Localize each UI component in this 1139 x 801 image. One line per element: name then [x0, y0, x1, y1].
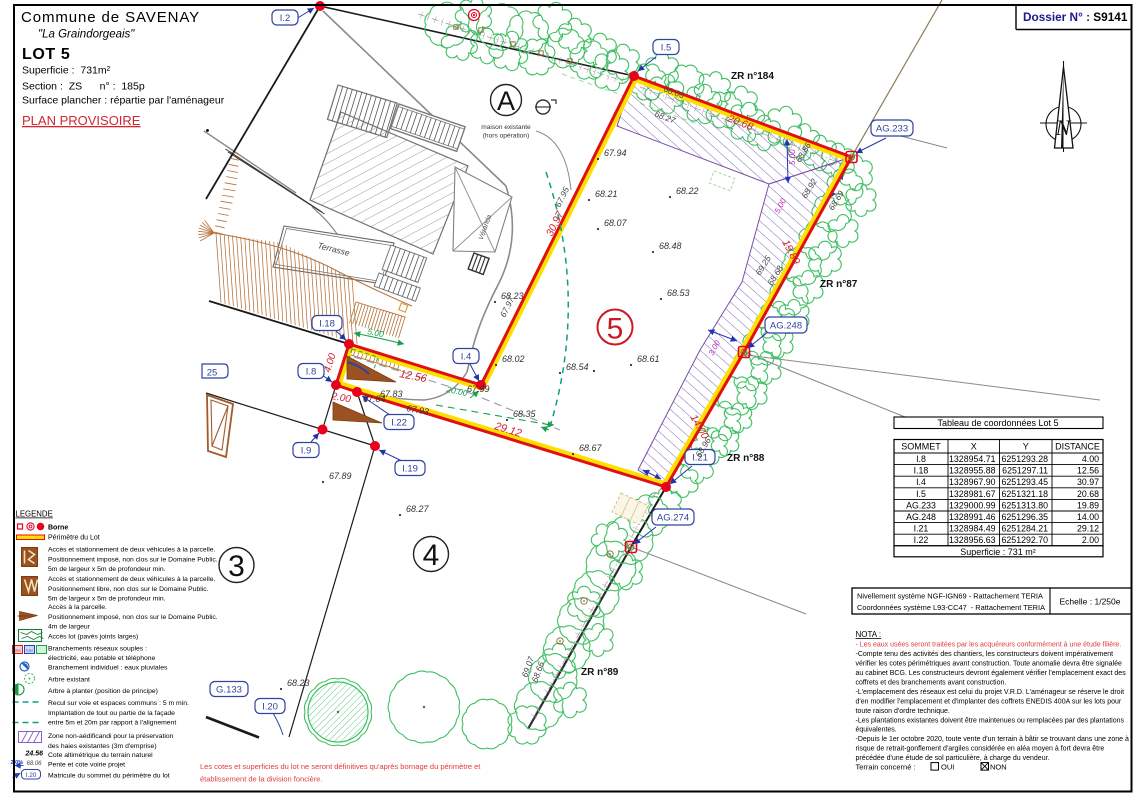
svg-text:toute raison d'ordre technique: toute raison d'ordre technique.	[856, 708, 950, 715]
svg-text:Coordonnées système L93-CC47: Coordonnées système L93-CC47 - Rattachem…	[857, 603, 1045, 612]
svg-text:ZR n°88: ZR n°88	[727, 453, 765, 464]
svg-text:Périmètre du Lot: Périmètre du Lot	[48, 535, 100, 542]
svg-text:1328954.71: 1328954.71	[949, 454, 996, 464]
svg-text:AG.248: AG.248	[770, 320, 802, 331]
svg-text:14.00: 14.00	[1077, 512, 1099, 522]
svg-text:NON: NON	[990, 763, 1007, 772]
svg-text:Commune de SAVENAY: Commune de SAVENAY	[21, 9, 200, 26]
svg-text:6251284.21: 6251284.21	[1002, 524, 1049, 534]
svg-text:PLAN PROVISOIRE: PLAN PROVISOIRE	[22, 113, 141, 128]
svg-text:68.61: 68.61	[637, 354, 660, 364]
svg-text:Elec: Elec	[14, 649, 21, 653]
svg-text:I.21: I.21	[914, 524, 929, 534]
svg-text:67.94: 67.94	[604, 148, 627, 158]
svg-text:68.21: 68.21	[595, 189, 618, 199]
svg-text:1328956.63: 1328956.63	[949, 535, 996, 545]
svg-text:Positionnement libre, non clos: Positionnement libre, non clos sur le Do…	[48, 586, 209, 593]
svg-text:AG.233: AG.233	[876, 123, 908, 134]
svg-text:68.22: 68.22	[676, 186, 699, 196]
svg-text:Matricule du sommet du périmèt: Matricule du sommet du périmètre du lot	[48, 773, 170, 780]
svg-text:NOTA :: NOTA :	[856, 630, 882, 639]
svg-text:I.2: I.2	[280, 13, 291, 24]
svg-text:Accès à la parcelle.: Accès à la parcelle.	[48, 604, 107, 611]
svg-text:I.20: I.20	[262, 701, 278, 712]
svg-text:AG.274: AG.274	[657, 512, 689, 523]
svg-text:24.56: 24.56	[25, 751, 44, 758]
svg-text:risque de retrait-gonflement d: risque de retrait-gonflement d'argiles c…	[856, 746, 1105, 753]
svg-text:OUI: OUI	[941, 763, 954, 772]
svg-text:Accès et stationnement de deux: Accès et stationnement de deux véhicules…	[48, 547, 215, 554]
svg-text:(hors opération): (hors opération)	[483, 133, 530, 140]
svg-text:Positionnement imposé, non clo: Positionnement imposé, non clos sur le D…	[48, 614, 218, 621]
svg-text:2.00: 2.00	[1082, 535, 1099, 545]
svg-text:6251292.70: 6251292.70	[1002, 535, 1049, 545]
svg-text:68.27: 68.27	[406, 504, 430, 514]
svg-text:établissement de la division f: établissement de la division foncière.	[200, 775, 323, 784]
svg-text:Superficie : 731 m²: Superficie : 731 m²	[960, 547, 1036, 557]
svg-text:Cote altimétrique du terrain n: Cote altimétrique du terrain naturel	[48, 752, 153, 759]
svg-text:I.8: I.8	[916, 454, 926, 464]
svg-text:Positionnement imposé, non clo: Positionnement imposé, non clos sur le D…	[48, 556, 218, 563]
svg-text:- Les eaux usées seront traité: - Les eaux usées seront traitées par les…	[856, 642, 1122, 649]
svg-text:I.18: I.18	[914, 466, 929, 476]
svg-text:67.99: 67.99	[467, 384, 490, 394]
svg-text:au cabinet BCG. Les constructe: au cabinet BCG. Les constructeurs devron…	[856, 670, 1127, 677]
svg-text:29.12: 29.12	[1077, 524, 1099, 534]
svg-text:1329000.99: 1329000.99	[949, 500, 996, 510]
svg-text:I.4: I.4	[461, 351, 472, 362]
svg-text:I.5: I.5	[661, 42, 672, 53]
svg-text:68.07: 68.07	[604, 218, 628, 228]
svg-text:68.67: 68.67	[579, 443, 603, 453]
svg-text:précédée d'une étude de sol pa: précédée d'une étude de sol particulière…	[856, 755, 1050, 762]
svg-text:d'en modifier l'emplacement et: d'en modifier l'emplacement et d'implant…	[856, 698, 1122, 705]
svg-text:I.20: I.20	[26, 772, 37, 779]
svg-text:I.22: I.22	[914, 535, 929, 545]
svg-text:I.18: I.18	[319, 318, 335, 329]
svg-text:68.23: 68.23	[287, 678, 310, 688]
svg-text:Les cotes et superficies du lo: Les cotes et superficies du lot ne seron…	[200, 762, 481, 771]
svg-text:LOT 5: LOT 5	[22, 46, 70, 63]
svg-text:ZR n°87: ZR n°87	[820, 279, 858, 290]
svg-text:I.8: I.8	[306, 366, 317, 377]
svg-text:67.89: 67.89	[329, 471, 352, 481]
svg-text:4.00: 4.00	[1082, 454, 1099, 464]
svg-text:"La Graindorgeais": "La Graindorgeais"	[38, 29, 135, 41]
svg-text:30.97: 30.97	[1077, 477, 1099, 487]
svg-text:maison existante: maison existante	[481, 124, 531, 131]
svg-text:DISTANCE: DISTANCE	[1055, 441, 1100, 451]
svg-text:3: 3	[228, 550, 245, 583]
svg-text:Superficie : 731m²: Superficie : 731m²	[22, 65, 111, 77]
svg-text:1328955.88: 1328955.88	[949, 466, 996, 476]
svg-text:équivalentes.: équivalentes.	[856, 727, 897, 734]
svg-text:12.56: 12.56	[1077, 466, 1099, 476]
svg-text:Implantation de tout ou partie: Implantation de tout ou partie de la faç…	[48, 710, 175, 717]
svg-text:1328981.67: 1328981.67	[949, 489, 996, 499]
svg-text:Nivellement système NGF-IGN69: Nivellement système NGF-IGN69 - Rattache…	[857, 592, 1043, 601]
svg-text:AG.248: AG.248	[906, 512, 936, 522]
svg-text:4: 4	[423, 539, 440, 572]
svg-text:vérifier les cotes périmétriqu: vérifier les cotes périmétriques avant c…	[856, 660, 1123, 667]
svg-text:Accès lot (pavés joints larges: Accès lot (pavés joints larges)	[48, 634, 138, 641]
svg-text:1328984.49: 1328984.49	[949, 524, 996, 534]
svg-text:SOMMET: SOMMET	[901, 441, 941, 451]
svg-text:19.89: 19.89	[1077, 500, 1099, 510]
svg-text:Arbre existant: Arbre existant	[48, 677, 90, 684]
svg-text:-L'emplacement des réseaux est: -L'emplacement des réseaux est celui du …	[856, 689, 1125, 696]
svg-text:I.4: I.4	[916, 477, 926, 487]
svg-text:Recul sur voie et espaces comm: Recul sur voie et espaces communs : 5 m …	[48, 700, 189, 707]
svg-text:1328991.46: 1328991.46	[949, 512, 996, 522]
svg-text:6251293.45: 6251293.45	[1002, 477, 1049, 487]
svg-text:6251293.28: 6251293.28	[1002, 454, 1049, 464]
svg-text:électricité, eau potable et té: électricité, eau potable et téléphone	[48, 655, 156, 662]
svg-text:-Les plantations existantes do: -Les plantations existantes doivent être…	[856, 717, 1125, 724]
svg-text:4m de largeur: 4m de largeur	[48, 624, 91, 631]
svg-text:coffrets et des branchements a: coffrets et des branchements avant const…	[856, 679, 1007, 686]
svg-text:-Depuis le 1er octobre 2020, t: -Depuis le 1er octobre 2020, toute vente…	[856, 736, 1129, 743]
svg-text:I.22: I.22	[391, 417, 407, 428]
svg-text:1328967.90: 1328967.90	[949, 477, 996, 487]
svg-text:Section : ZS n° : 185p: Section : ZS n° : 185p	[22, 81, 145, 93]
svg-text:LEGENDE: LEGENDE	[16, 510, 53, 519]
svg-text:68.02: 68.02	[502, 354, 525, 364]
svg-text:68.35: 68.35	[513, 409, 537, 419]
svg-text:Tableau de coordonnées Lot 5: Tableau de coordonnées Lot 5	[937, 418, 1058, 428]
svg-text:Surface plancher : répartie pa: Surface plancher : répartie par l'aménag…	[22, 95, 225, 107]
svg-text:Zone non-aédificandi pour la p: Zone non-aédificandi pour la préservatio…	[48, 733, 174, 740]
svg-text:68.54: 68.54	[566, 362, 589, 372]
svg-text:6251296.35: 6251296.35	[1002, 512, 1049, 522]
svg-text:N: N	[1055, 115, 1072, 140]
svg-text:Y: Y	[1023, 441, 1029, 451]
svg-text:I.9: I.9	[301, 445, 312, 456]
svg-text:Arbre à planter (position de p: Arbre à planter (position de principe)	[48, 688, 158, 695]
svg-text:I.5: I.5	[916, 489, 926, 499]
svg-text:5m de largeur x 5m de profonde: 5m de largeur x 5m de profondeur min.	[48, 566, 166, 573]
svg-text:Dossier N° : S9141: Dossier N° : S9141	[1023, 10, 1128, 24]
svg-text:Accès et stationnement de deux: Accès et stationnement de deux véhicules…	[48, 576, 215, 583]
svg-text:Eau: Eau	[26, 649, 32, 653]
svg-text:68.06: 68.06	[27, 761, 43, 767]
svg-text:67.84: 67.84	[363, 394, 386, 404]
svg-text:entre 5m et 20m par rapport à: entre 5m et 20m par rapport à l'aligneme…	[48, 720, 176, 727]
svg-text:68.48: 68.48	[659, 241, 682, 251]
svg-text:Branchement individuel : eaux: Branchement individuel : eaux pluviales	[48, 665, 168, 672]
svg-text:G.133: G.133	[216, 684, 242, 695]
svg-text:Branchements réseaux souples :: Branchements réseaux souples :	[48, 646, 147, 653]
svg-text:6251321.18: 6251321.18	[1002, 489, 1049, 499]
svg-text:20.68: 20.68	[1077, 489, 1099, 499]
svg-text:AG.233: AG.233	[906, 500, 936, 510]
svg-text:6251313.80: 6251313.80	[1002, 500, 1049, 510]
svg-text:-Compte tenu des activités des: -Compte tenu des activités des chantiers…	[856, 651, 1114, 658]
svg-text:I.19: I.19	[402, 463, 418, 474]
svg-text:ZR n°89: ZR n°89	[581, 667, 619, 678]
svg-text:A: A	[497, 86, 515, 116]
svg-text:X: X	[971, 441, 977, 451]
svg-text:Pente et cote voirie projet: Pente et cote voirie projet	[48, 762, 125, 769]
svg-text:68.53: 68.53	[667, 288, 690, 298]
svg-text:6251297.11: 6251297.11	[1002, 466, 1048, 476]
svg-text:Echelle : 1/250e: Echelle : 1/250e	[1060, 597, 1121, 607]
svg-text:des haies existantes (3m d'emp: des haies existantes (3m d'emprise)	[48, 743, 157, 750]
svg-text:Terrain concerné :: Terrain concerné :	[856, 763, 916, 772]
svg-text:5m de largeur x 5m de profonde: 5m de largeur x 5m de profondeur min.	[48, 596, 166, 603]
svg-text:25: 25	[207, 368, 218, 379]
svg-text:ZR n°184: ZR n°184	[731, 71, 774, 82]
svg-text:Borne: Borne	[48, 525, 68, 532]
svg-text:5: 5	[607, 313, 624, 346]
